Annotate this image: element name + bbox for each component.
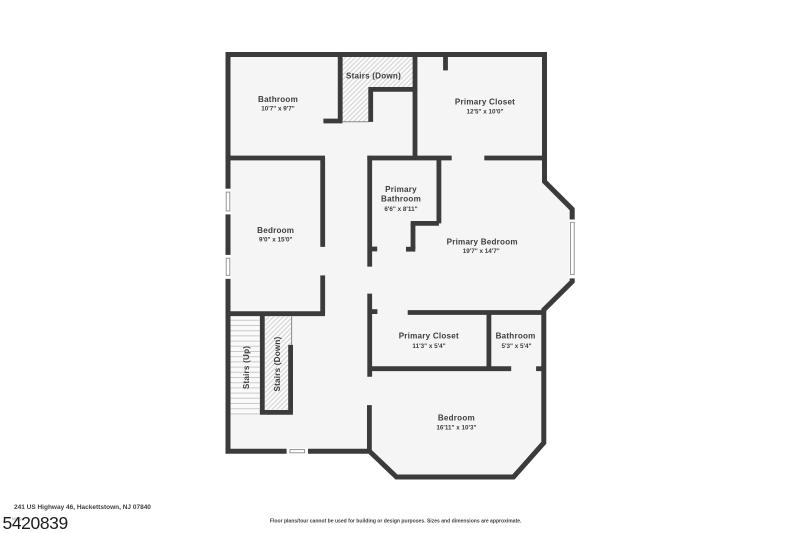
svg-text:Primary Closet: Primary Closet bbox=[399, 332, 459, 341]
svg-text:6'6" x 8'11": 6'6" x 8'11" bbox=[384, 206, 417, 213]
svg-text:Primary: Primary bbox=[385, 185, 417, 194]
svg-text:11'3" x 5'4": 11'3" x 5'4" bbox=[412, 343, 445, 350]
svg-text:9'0" x 15'0": 9'0" x 15'0" bbox=[259, 236, 292, 243]
svg-text:12'5" x 10'0": 12'5" x 10'0" bbox=[467, 108, 504, 115]
svg-text:Floor plans/tour cannot be use: Floor plans/tour cannot be used for buil… bbox=[270, 518, 522, 524]
svg-text:Bathroom: Bathroom bbox=[258, 95, 298, 104]
svg-text:Stairs (Down): Stairs (Down) bbox=[273, 336, 282, 391]
svg-text:5'3" x 5'4": 5'3" x 5'4" bbox=[502, 343, 532, 350]
svg-text:Primary Bedroom: Primary Bedroom bbox=[447, 237, 518, 246]
svg-text:10'7" x 9'7": 10'7" x 9'7" bbox=[261, 106, 294, 113]
svg-text:Bedroom: Bedroom bbox=[438, 414, 475, 423]
svg-text:Bathroom: Bathroom bbox=[381, 195, 421, 204]
svg-text:241 US Highway 46, Hackettstow: 241 US Highway 46, Hackettstown, NJ 0784… bbox=[14, 504, 151, 511]
svg-text:Bathroom: Bathroom bbox=[496, 332, 536, 341]
svg-text:19'7" x 14'7": 19'7" x 14'7" bbox=[463, 248, 500, 255]
svg-text:16'11" x 10'3": 16'11" x 10'3" bbox=[436, 424, 476, 431]
svg-text:Bedroom: Bedroom bbox=[257, 226, 294, 235]
svg-text:Stairs (Up): Stairs (Up) bbox=[242, 346, 251, 389]
svg-text:5420839: 5420839 bbox=[3, 513, 68, 533]
svg-text:Primary Closet: Primary Closet bbox=[455, 98, 515, 107]
svg-text:Stairs (Down): Stairs (Down) bbox=[346, 71, 401, 80]
